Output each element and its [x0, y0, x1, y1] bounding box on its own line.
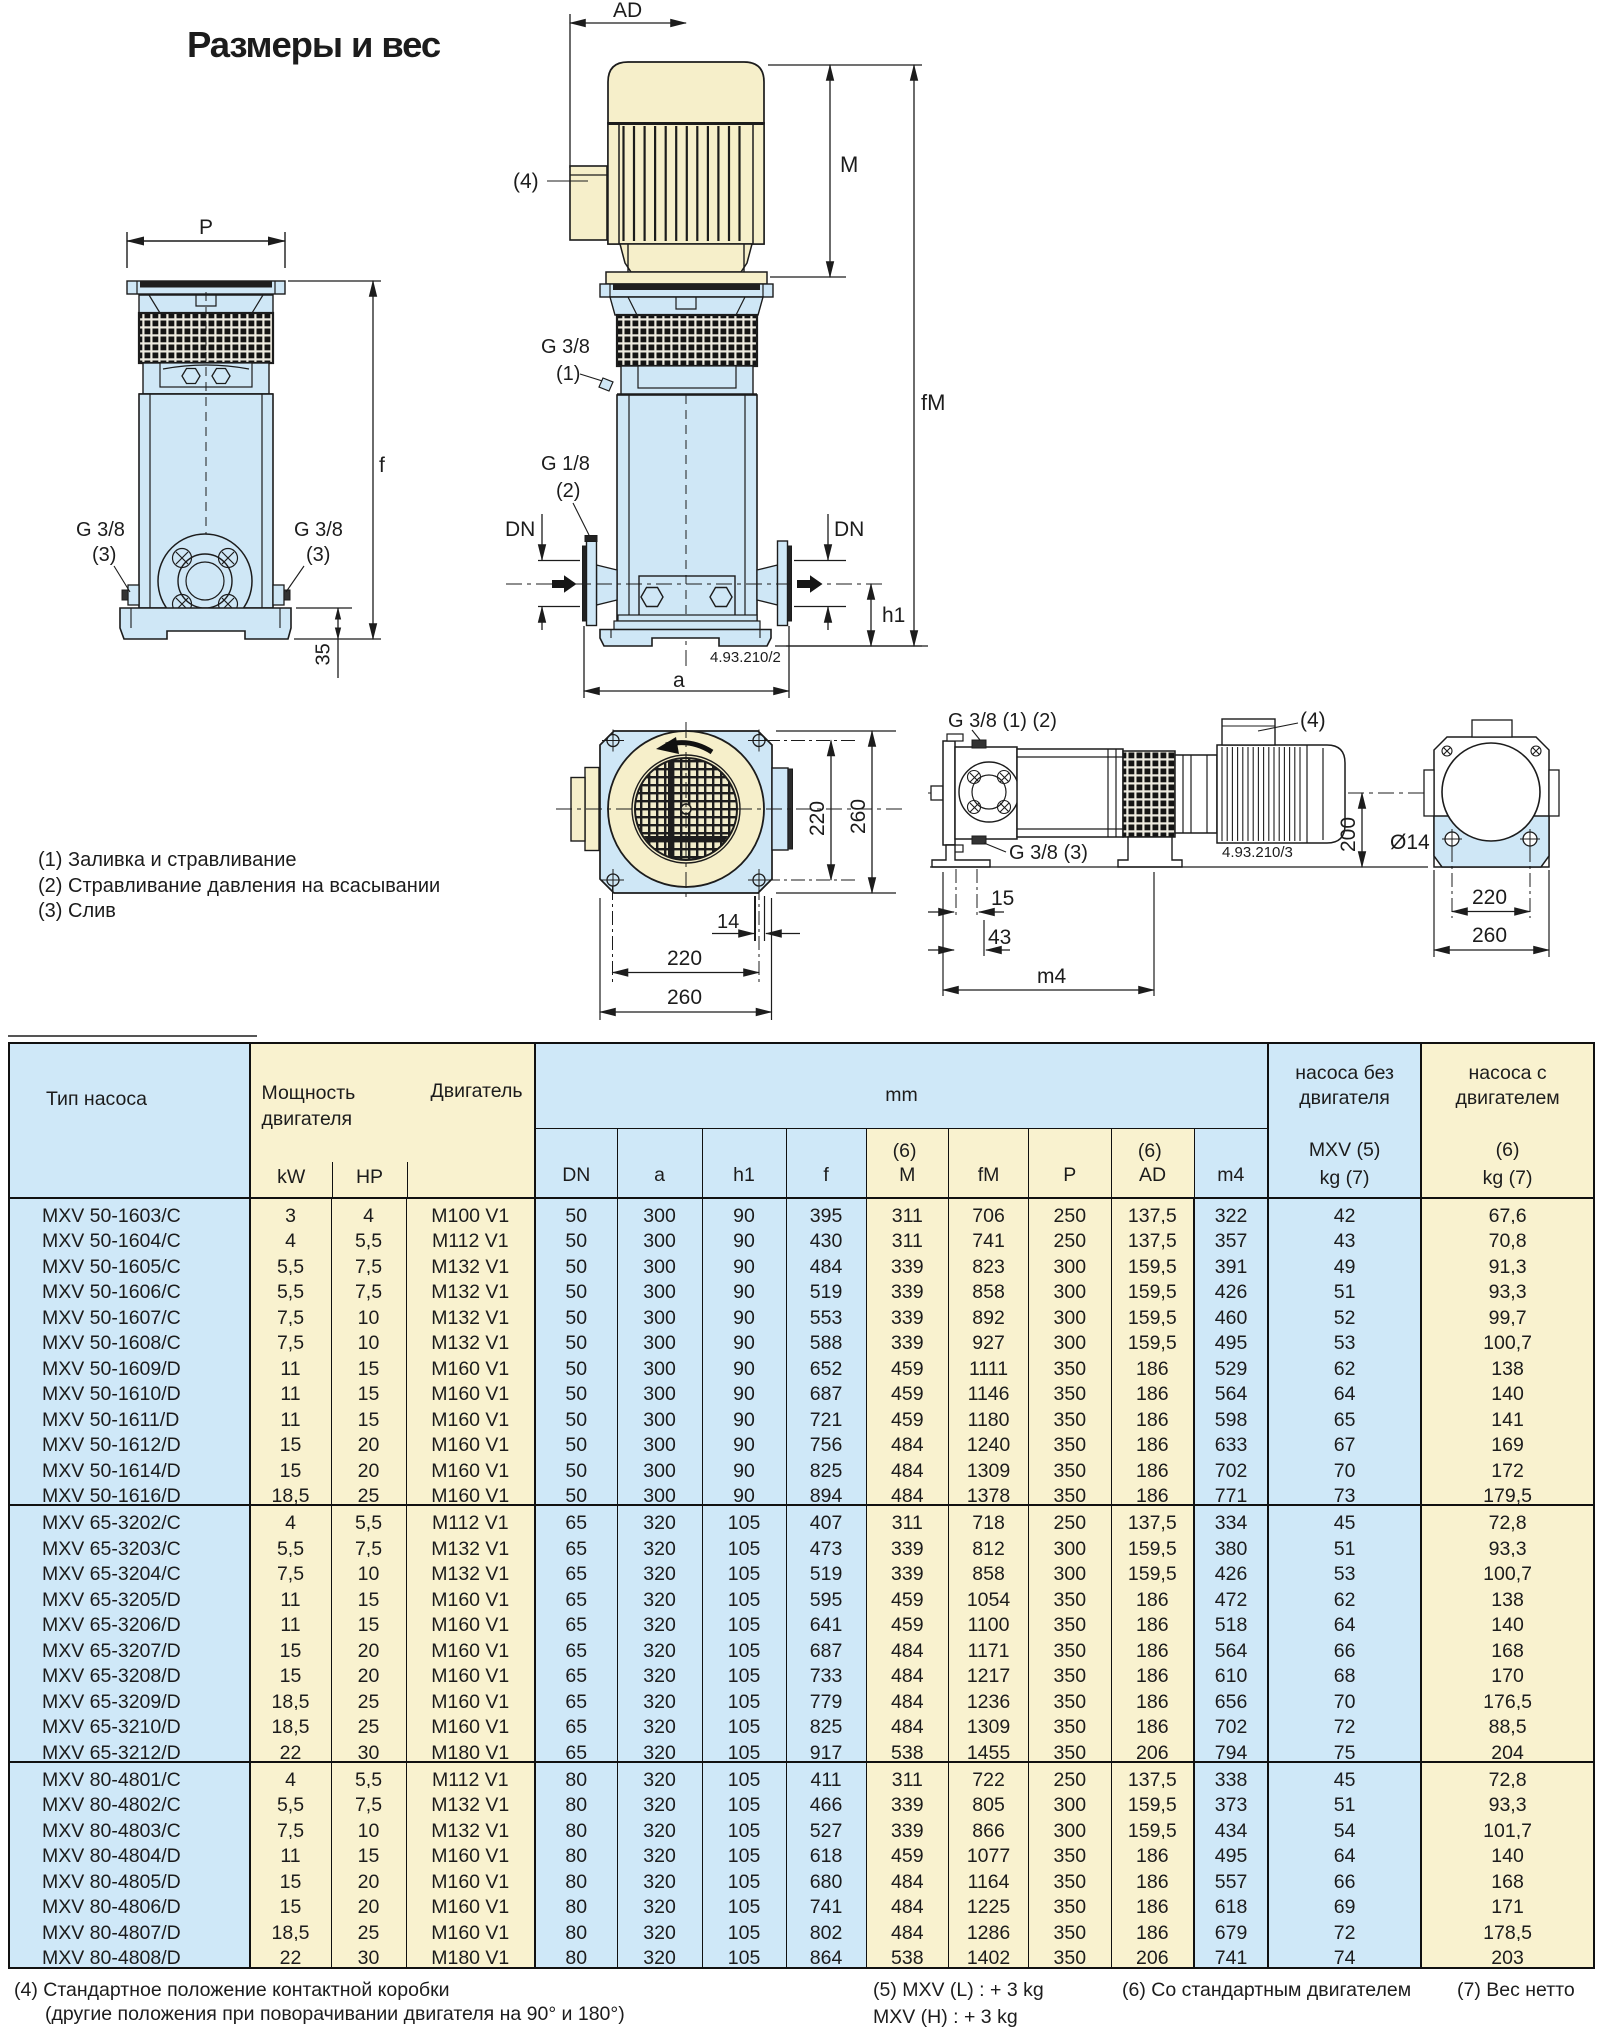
svg-text:G 3/8 (3): G 3/8 (3) — [1009, 842, 1088, 864]
svg-text:G 3/8: G 3/8 — [294, 519, 343, 541]
svg-text:AD: AD — [613, 0, 642, 22]
svg-text:260: 260 — [667, 986, 702, 1009]
svg-text:4.93.210/2: 4.93.210/2 — [710, 649, 781, 666]
svg-text:G 3/8: G 3/8 — [541, 336, 590, 358]
svg-text:14: 14 — [717, 911, 739, 933]
svg-text:G 3/8: G 3/8 — [76, 519, 125, 541]
svg-text:DN: DN — [834, 518, 864, 541]
svg-text:43: 43 — [988, 926, 1011, 949]
svg-text:G 3/8 (1) (2): G 3/8 (1) (2) — [948, 710, 1057, 732]
svg-text:(3): (3) — [306, 544, 330, 566]
svg-text:fM: fM — [921, 390, 945, 415]
svg-text:m4: m4 — [1037, 965, 1066, 988]
svg-text:f: f — [379, 454, 385, 477]
svg-text:DN: DN — [505, 518, 535, 541]
svg-text:(2): (2) — [556, 480, 580, 502]
svg-text:(4): (4) — [1300, 709, 1326, 732]
svg-text:(3): (3) — [92, 544, 116, 566]
svg-text:M: M — [840, 152, 858, 177]
svg-text:a: a — [673, 669, 685, 692]
svg-text:P: P — [199, 216, 213, 239]
svg-text:220: 220 — [1472, 886, 1507, 909]
svg-text:260: 260 — [1472, 924, 1507, 947]
svg-text:4.93.210/3: 4.93.210/3 — [1222, 844, 1293, 861]
svg-text:35: 35 — [313, 643, 335, 665]
svg-text:G 1/8: G 1/8 — [541, 453, 590, 475]
svg-text:200: 200 — [1337, 817, 1360, 852]
svg-text:220: 220 — [806, 801, 829, 836]
svg-text:260: 260 — [847, 799, 870, 834]
svg-text:h1: h1 — [882, 604, 905, 627]
svg-text:(1): (1) — [556, 363, 580, 385]
svg-text:(4): (4) — [513, 170, 539, 193]
svg-text:Ø14: Ø14 — [1390, 831, 1430, 854]
svg-text:220: 220 — [667, 947, 702, 970]
svg-text:15: 15 — [991, 887, 1014, 910]
